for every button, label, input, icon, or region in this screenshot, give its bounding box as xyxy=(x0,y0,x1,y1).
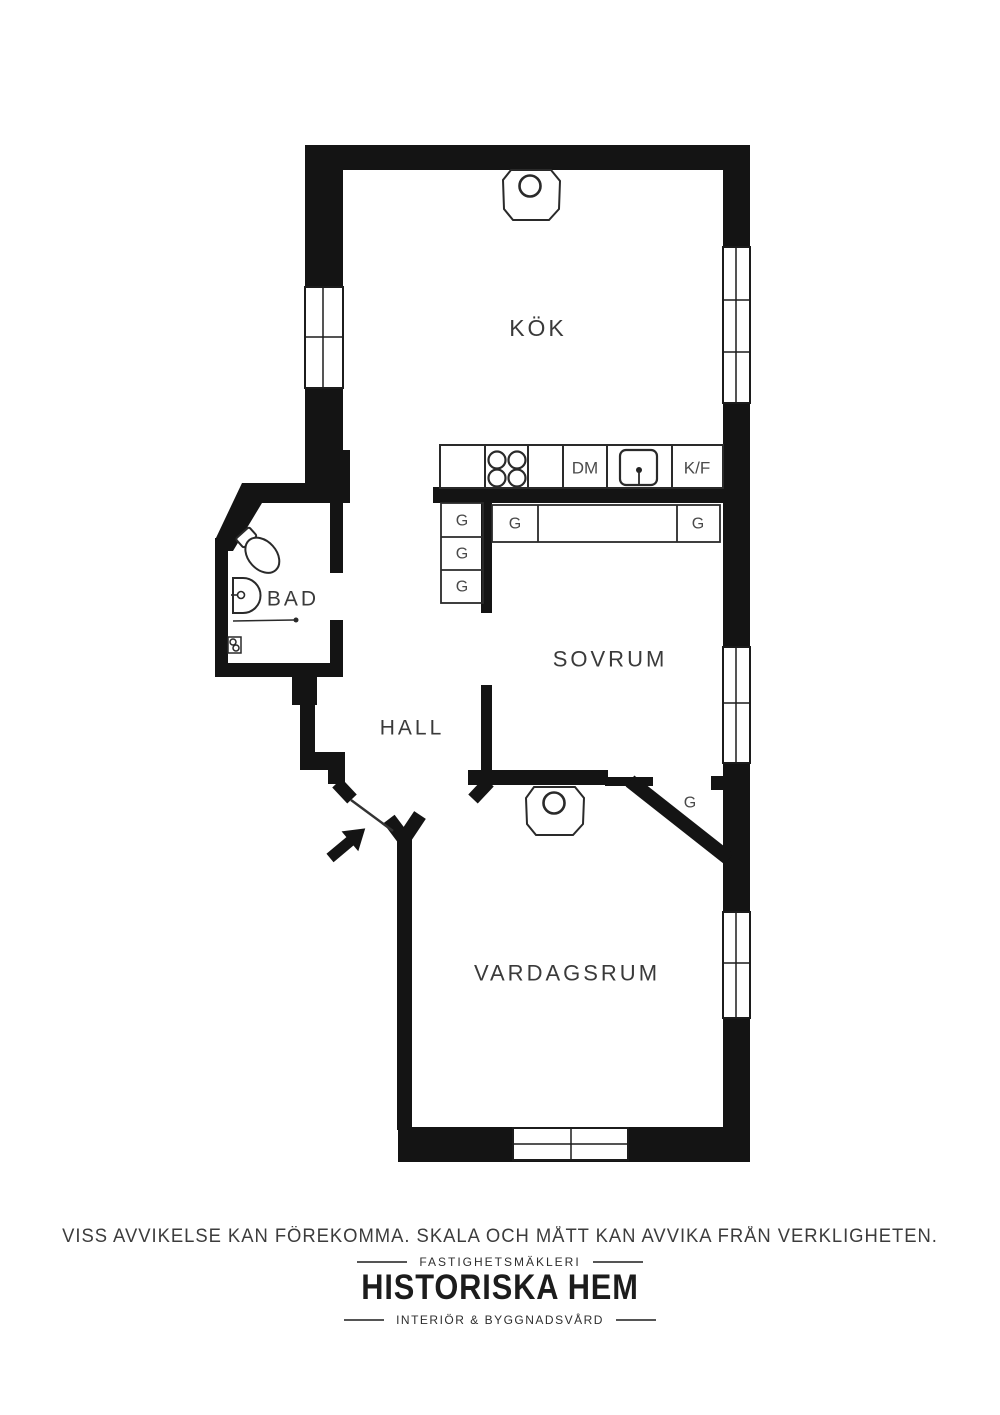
wardrobe-label-corner-closet: G xyxy=(684,795,696,812)
room-label-bathroom: BAD xyxy=(267,588,319,611)
bedroom-wardrobe-row xyxy=(492,505,720,542)
wall-kitchen-top xyxy=(305,145,750,170)
floorplan-drawing: DM K/F G G G G G G xyxy=(0,0,1000,1230)
wall-right-mid xyxy=(723,403,750,647)
divider-line xyxy=(593,1261,643,1263)
wall-bath-topright-block xyxy=(307,450,350,503)
wall-living-left xyxy=(397,828,412,1130)
cooktop-icon xyxy=(489,452,526,487)
wardrobe-label: G xyxy=(456,546,468,563)
wardrobe-label: G xyxy=(456,579,468,596)
wall-kitchen-right-upper xyxy=(723,145,750,247)
divider-line xyxy=(344,1319,384,1321)
entry-jamb-y-right-arm xyxy=(404,815,420,839)
divider-line xyxy=(357,1261,407,1263)
window-mullions xyxy=(305,247,750,1160)
wardrobe-label: G xyxy=(692,516,704,533)
wall-bath-bottom xyxy=(215,663,343,677)
disclaimer-text: VISS AVVIKELSE KAN FÖREKOMMA. SKALA OCH … xyxy=(15,1226,985,1248)
room-label-bedroom: SOVRUM xyxy=(553,647,668,672)
floor-drain-icon xyxy=(228,637,241,653)
brand-category: FASTIGHETSMÄKLERI xyxy=(419,1255,580,1269)
brand-tagline-row: INTERIÖR & BYGGNADSVÅRD xyxy=(0,1313,1000,1327)
wall-living-right-lower xyxy=(723,1018,750,1162)
windows xyxy=(305,247,750,1160)
appliance-label-fridge-freezer: K/F xyxy=(684,459,710,478)
room-label-hall: HALL xyxy=(380,717,445,740)
wall-bath-right-lower xyxy=(330,620,343,670)
tiled-stove-kitchen-icon xyxy=(503,170,560,220)
wardrobe-label: G xyxy=(456,513,468,530)
wall-hall-left xyxy=(300,677,315,757)
room-label-living-room: VARDAGSRUM xyxy=(474,961,660,986)
appliance-label-dishwasher: DM xyxy=(572,459,598,478)
brand-name: HISTORISKA HEM xyxy=(60,1270,940,1306)
room-label-kitchen: KÖK xyxy=(509,315,567,341)
wall-bath-right-upper xyxy=(330,497,343,573)
entrance-door-swing xyxy=(351,800,393,831)
entry-door-jamb-left xyxy=(337,783,352,799)
wall-closet-stub xyxy=(711,776,723,790)
divider-line xyxy=(616,1319,656,1321)
wall-bath-left xyxy=(215,538,228,677)
washbasin-icon xyxy=(231,578,261,613)
tiled-stove-living-icon xyxy=(526,787,584,835)
entrance-arrow-icon xyxy=(322,818,374,867)
wall-right-bedroom-living xyxy=(723,763,750,912)
wall-kitchen-left-upper xyxy=(305,145,343,287)
brand-tagline: INTERIÖR & BYGGNADSVÅRD xyxy=(396,1313,604,1327)
wall-bedroom-left-lower xyxy=(481,685,492,770)
wall-kitchen-bottom xyxy=(433,487,750,503)
floorplan-page: DM K/F G G G G G G xyxy=(0,0,1000,1415)
brand-category-row: FASTIGHETSMÄKLERI xyxy=(0,1255,1000,1269)
corner-closet-diagonal-wall xyxy=(630,781,729,859)
walls xyxy=(215,145,750,1162)
wardrobe-label: G xyxy=(509,516,521,533)
kitchen-sink-icon xyxy=(620,450,657,485)
shower-rail-icon xyxy=(233,618,299,623)
footer: VISS AVVIKELSE KAN FÖREKOMMA. SKALA OCH … xyxy=(0,1226,1000,1327)
